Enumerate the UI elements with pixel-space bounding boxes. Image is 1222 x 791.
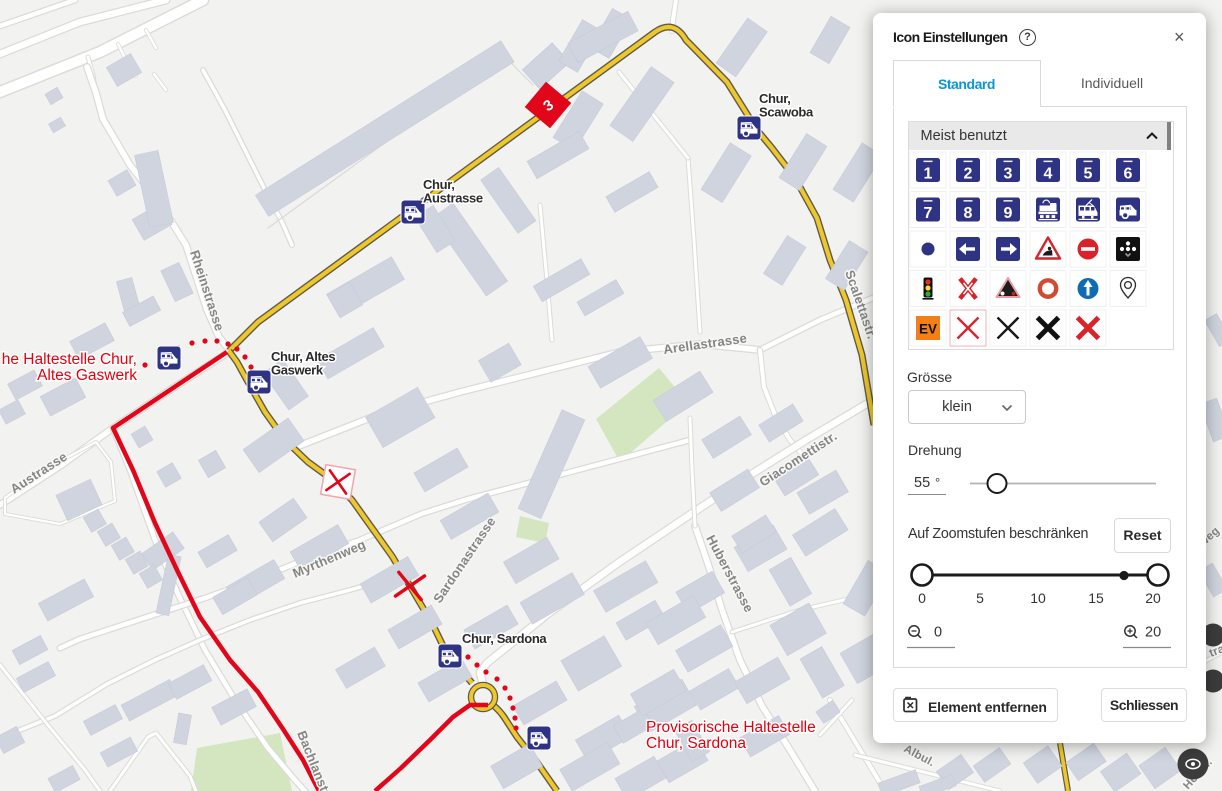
svg-text:he Haltestelle Chur,: he Haltestelle Chur,: [2, 351, 137, 368]
svg-text:3: 3: [1004, 166, 1013, 183]
svg-text:Chur, Sardona: Chur, Sardona: [462, 631, 547, 646]
svg-text:Provisorische Haltestelle: Provisorische Haltestelle: [646, 719, 816, 736]
svg-text:6: 6: [1124, 166, 1133, 183]
svg-text:EV: EV: [919, 322, 937, 337]
svg-text:Austrasse: Austrasse: [423, 191, 483, 206]
svg-text:0: 0: [934, 625, 942, 641]
svg-text:Scawoba: Scawoba: [759, 105, 814, 120]
svg-text:Altes Gaswerk: Altes Gaswerk: [37, 367, 137, 384]
svg-text:9: 9: [1004, 205, 1013, 222]
svg-text:Gaswerk: Gaswerk: [271, 363, 324, 378]
svg-text:4: 4: [1044, 166, 1053, 183]
svg-text:Chur, Sardona: Chur, Sardona: [646, 735, 746, 752]
svg-text:20: 20: [1145, 625, 1161, 641]
svg-text:5: 5: [1084, 166, 1093, 183]
svg-text:7: 7: [924, 205, 933, 222]
svg-text:8: 8: [964, 205, 973, 222]
svg-text:2: 2: [964, 166, 973, 183]
svg-text:1: 1: [924, 166, 933, 183]
